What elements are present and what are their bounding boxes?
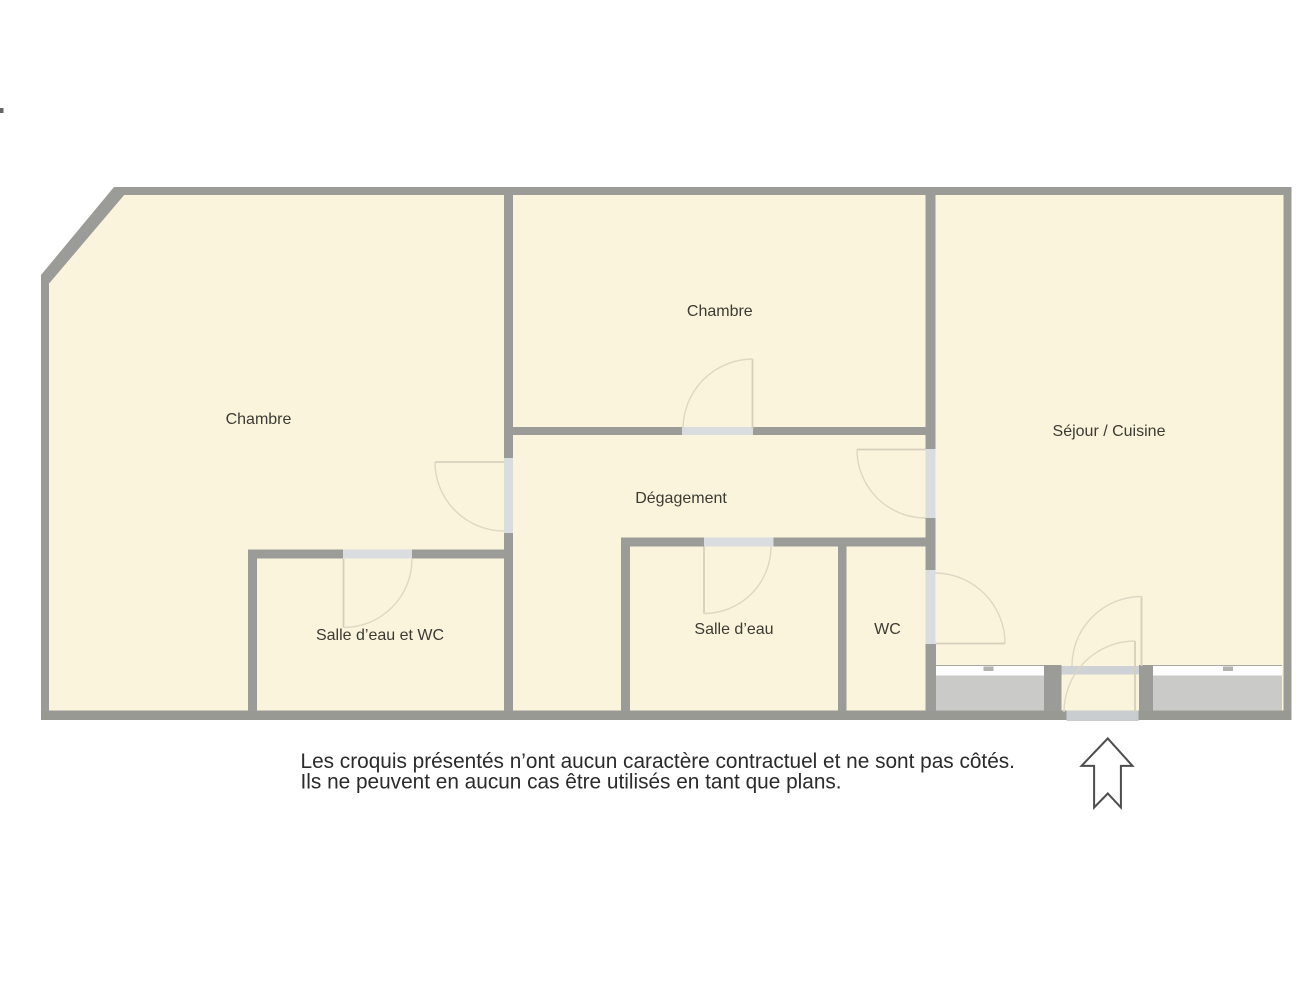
svg-text:Salle d’eau et WC: Salle d’eau et WC [316,627,444,644]
svg-text:Salle d’eau: Salle d’eau [694,621,773,638]
svg-text:Chambre: Chambre [226,411,292,428]
svg-text:Dégagement: Dégagement [635,490,727,507]
svg-text:WC: WC [874,621,901,638]
svg-text:Chambre: Chambre [687,303,753,320]
svg-text:Ils ne peuvent en aucun cas êt: Ils ne peuvent en aucun cas être utilisé… [301,770,842,793]
svg-text:Séjour / Cuisine: Séjour / Cuisine [1053,423,1166,440]
